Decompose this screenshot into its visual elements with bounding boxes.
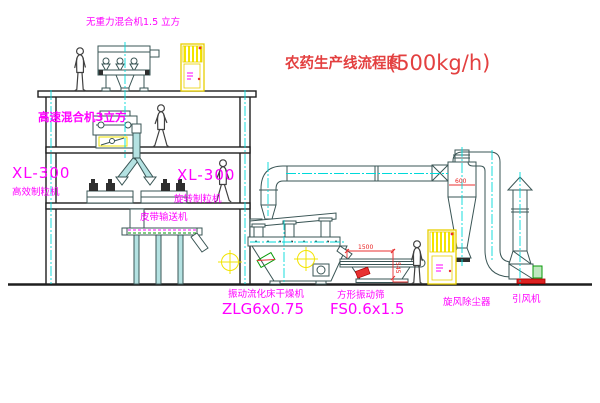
worker-figure bbox=[412, 241, 423, 284]
dim-screen-length: 1500 bbox=[358, 244, 373, 251]
gravity-mixer bbox=[98, 46, 159, 91]
worker-figure bbox=[153, 105, 169, 147]
indicator-dot bbox=[451, 233, 454, 236]
indicator-dot bbox=[198, 78, 200, 80]
fan-motor bbox=[533, 266, 542, 278]
label-fan: 引风机 bbox=[512, 293, 541, 305]
label-gravity-mixer: 无重力混合机1.5 立方 bbox=[86, 16, 180, 28]
vibrating-screen-machine bbox=[340, 249, 425, 283]
label-granulator-right-name: 旋转制粒机 bbox=[174, 193, 222, 205]
dim-screen-height: 545 bbox=[394, 262, 401, 274]
centerline-target bbox=[218, 250, 242, 274]
label-granulator-right-model: XL-300 bbox=[177, 166, 235, 184]
indicator-dot bbox=[199, 47, 202, 50]
cad-drawing-canvas: 无重力混合机1.5 立方 高速混合机3立方 XL-300 高效制粒机 XL-30… bbox=[0, 0, 600, 403]
dim-cyclone: 600 bbox=[455, 178, 467, 185]
control-cabinet-top bbox=[181, 44, 204, 91]
label-granulator-left-model: XL-300 bbox=[12, 164, 70, 182]
label-belt-conveyor: 皮带输送机 bbox=[140, 211, 188, 223]
fan-base bbox=[517, 279, 545, 284]
control-cabinet-ground bbox=[428, 230, 456, 284]
worker-figure bbox=[75, 48, 86, 91]
indicator-dot bbox=[449, 270, 451, 272]
label-granulator-left-name: 高效制粒机 bbox=[12, 186, 60, 198]
label-high-speed-mixer: 高速混合机3立方 bbox=[38, 110, 127, 124]
drawing-title-capacity: (500kg/h) bbox=[388, 51, 490, 75]
label-dryer-model: ZLG6x0.75 bbox=[222, 300, 304, 318]
granulator-left-machine bbox=[87, 177, 133, 203]
label-screen-model: FS0.6x1.5 bbox=[330, 300, 404, 318]
fan-machine bbox=[509, 264, 545, 284]
flow-diagram: 无重力混合机1.5 立方 高速混合机3立方 XL-300 高效制粒机 XL-30… bbox=[0, 0, 600, 403]
drawing-title: 农药生产线流程图 bbox=[284, 54, 401, 72]
label-cyclone: 旋风除尘器 bbox=[443, 296, 491, 308]
label-dryer-name: 振动流化床干燥机 bbox=[228, 288, 305, 300]
fluid-bed-dryer-machine bbox=[218, 213, 352, 284]
